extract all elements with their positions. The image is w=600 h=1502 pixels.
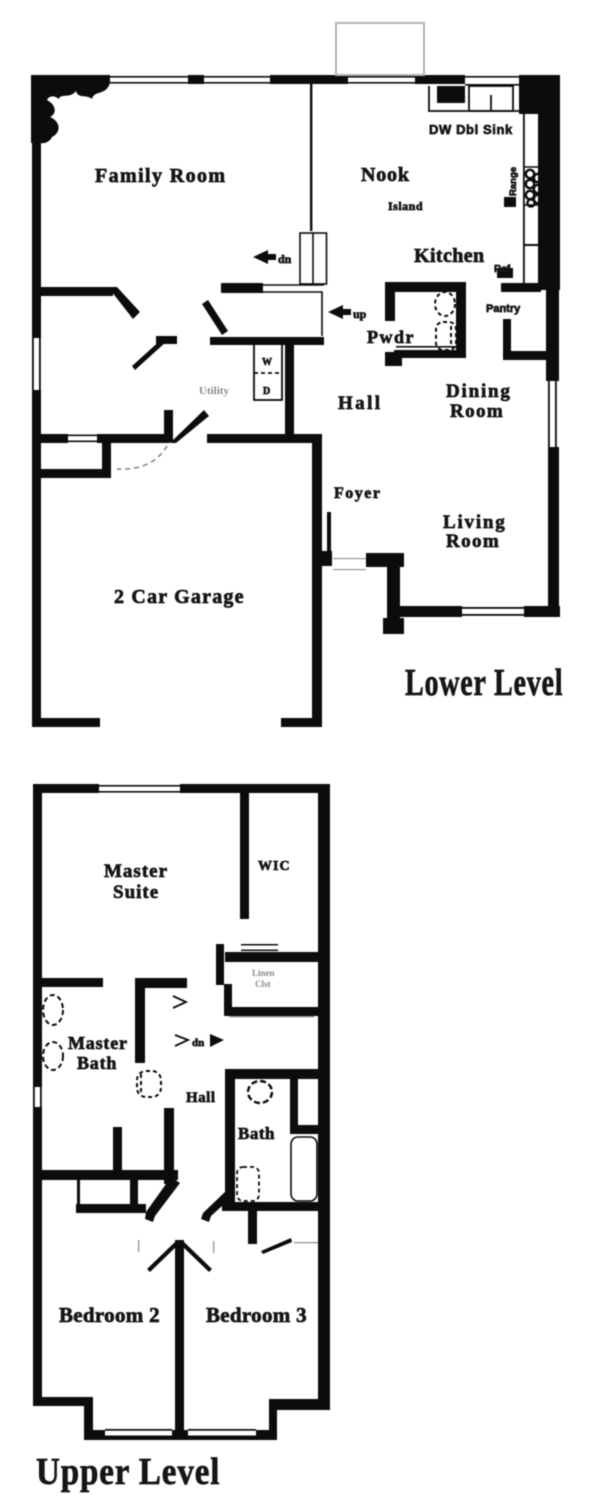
svg-text:Room: Room xyxy=(446,531,500,552)
svg-text:Living: Living xyxy=(443,512,507,533)
svg-text:Bedroom 2: Bedroom 2 xyxy=(59,1303,160,1327)
svg-text:Kitchen: Kitchen xyxy=(414,245,485,267)
svg-text:Hall: Hall xyxy=(186,1090,216,1106)
svg-text:dn: dn xyxy=(192,1037,204,1049)
svg-text:DW Dbl Sink: DW Dbl Sink xyxy=(429,122,513,137)
svg-text:Ref: Ref xyxy=(494,264,511,275)
svg-text:Upper Level: Upper Level xyxy=(36,1450,220,1493)
svg-text:2 Car Garage: 2 Car Garage xyxy=(114,586,245,608)
svg-text:Bedroom 3: Bedroom 3 xyxy=(206,1303,307,1327)
svg-text:Hall: Hall xyxy=(338,393,382,414)
svg-text:WIC: WIC xyxy=(258,859,291,874)
svg-text:Master: Master xyxy=(104,861,168,882)
svg-text:Range: Range xyxy=(508,167,519,196)
svg-text:Linen: Linen xyxy=(252,968,275,978)
svg-text:Bath: Bath xyxy=(238,1124,275,1143)
svg-text:W: W xyxy=(262,357,272,368)
svg-text:Utility: Utility xyxy=(199,385,229,397)
svg-text:Foyer: Foyer xyxy=(334,485,381,502)
svg-text:Pwdr: Pwdr xyxy=(367,327,415,347)
svg-text:Clst: Clst xyxy=(255,979,271,989)
svg-text:Room: Room xyxy=(450,401,504,422)
svg-text:D: D xyxy=(263,386,270,397)
svg-text:Suite: Suite xyxy=(113,882,159,903)
svg-text:Nook: Nook xyxy=(361,164,410,186)
svg-text:Master: Master xyxy=(68,1033,128,1053)
svg-text:Dining: Dining xyxy=(446,381,512,402)
svg-text:Lower Level: Lower Level xyxy=(405,662,563,704)
svg-text:Family Room: Family Room xyxy=(95,165,227,187)
svg-text:dn: dn xyxy=(278,252,292,266)
svg-text:Island: Island xyxy=(388,199,423,213)
svg-text:Pantry: Pantry xyxy=(486,303,521,315)
svg-text:Bath: Bath xyxy=(77,1053,117,1073)
svg-text:up: up xyxy=(353,307,367,321)
